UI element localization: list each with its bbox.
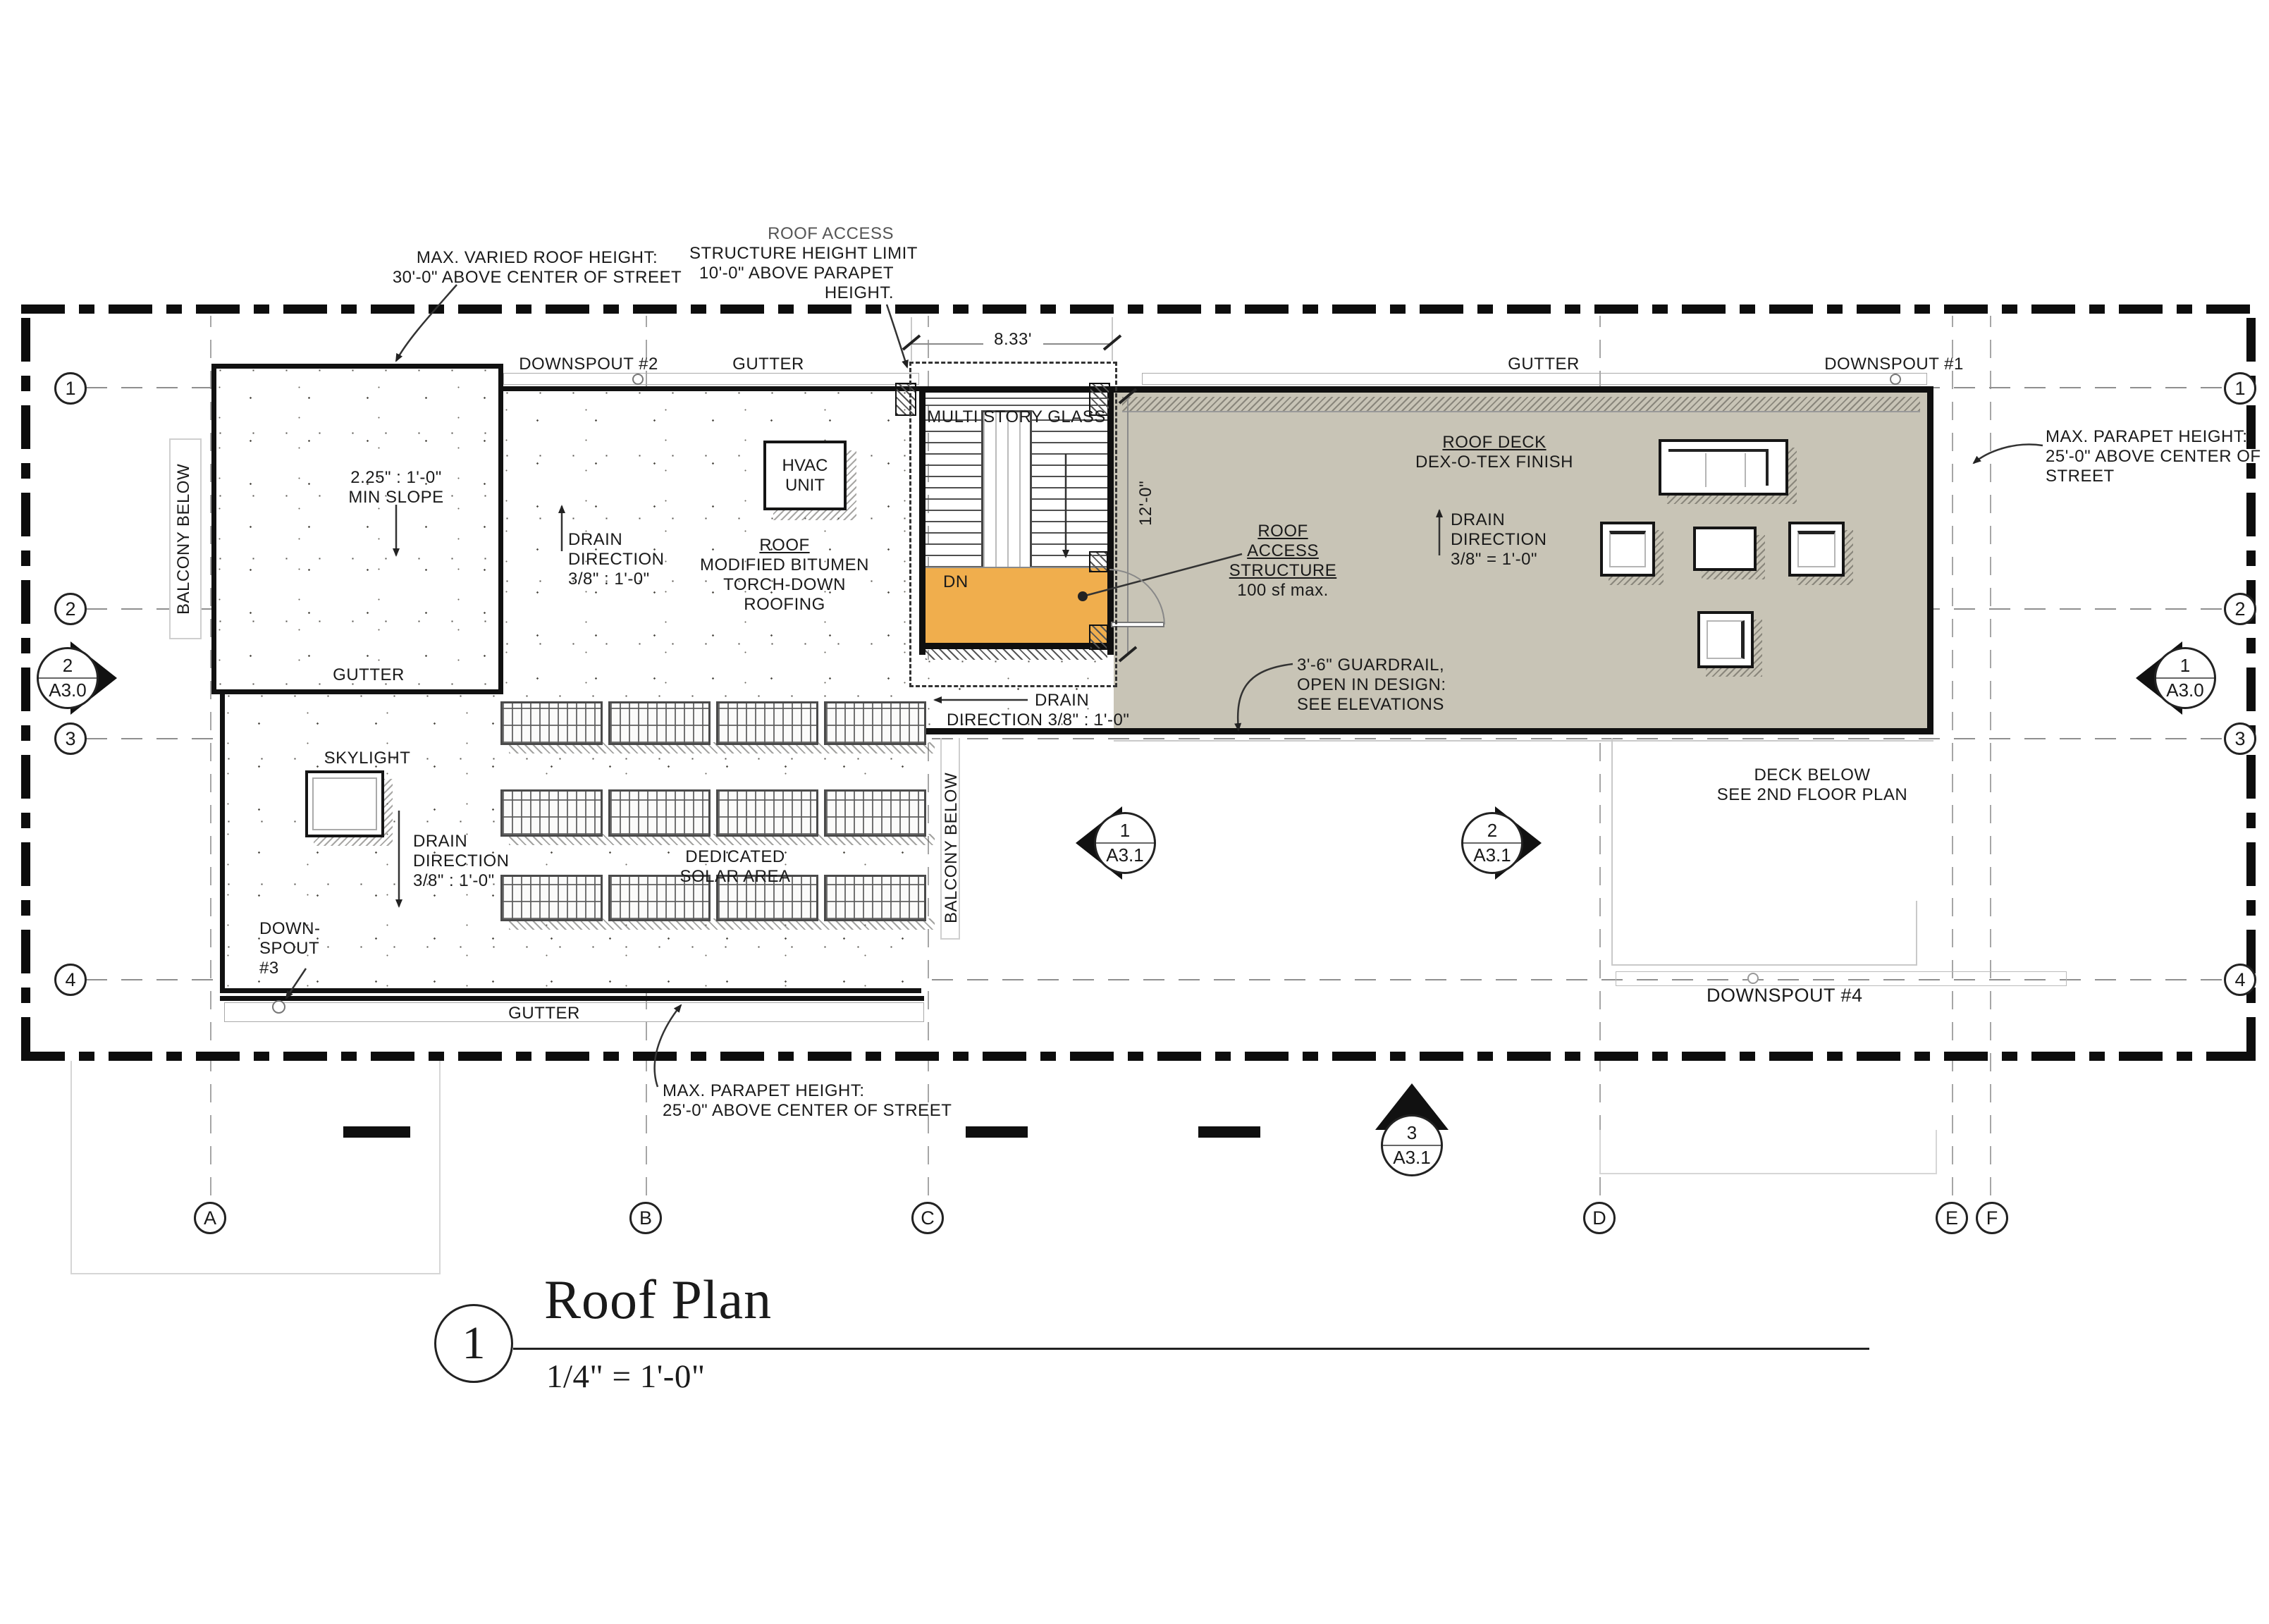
hvac-label-2: UNIT (785, 476, 825, 496)
property-line-right (2246, 304, 2256, 1061)
chair-inner (1797, 531, 1836, 567)
roof-deck-finish-note: ROOF DECKDEX-O-TEX FINISH (1415, 433, 1573, 472)
max-varied-roof-height-note: MAX. VARIED ROOF HEIGHT:30'-0" ABOVE CEN… (393, 248, 682, 288)
max-parapet-bottom-note: MAX. PARAPET HEIGHT:25'-0" ABOVE CENTER … (663, 1081, 952, 1121)
dim-deck-width: 12'-0" (1136, 481, 1156, 526)
downspout3-hole (272, 1000, 285, 1014)
solar-panel (500, 701, 603, 745)
max-parapet-right-note: MAX. PARAPET HEIGHT:25'-0" ABOVE CENTER … (2046, 427, 2261, 486)
solar-panel (824, 875, 926, 921)
dim-line-deck (1127, 395, 1129, 654)
downspout1-hole (1890, 374, 1901, 385)
guardrail-note: 3'-6" GUARDRAIL,OPEN IN DESIGN:SEE ELEVA… (1297, 656, 1446, 715)
deck-top-wall (1114, 386, 1933, 393)
downspout3-label: DOWN-SPOUT#3 (259, 919, 320, 978)
chair-bottom (1697, 611, 1754, 668)
dim-witness-right (1112, 317, 1113, 361)
gutter-left-label: GUTTER (333, 665, 405, 685)
chair-right (1788, 522, 1845, 577)
sofa (1659, 439, 1788, 496)
grid-bubble-row3-right: 3 (2224, 722, 2256, 755)
sofa-arm-line (1766, 449, 1769, 486)
multi-story-glass-label: MULTI STORY GLASS (927, 407, 1105, 427)
sofa-seat-divider (1705, 453, 1707, 487)
downspout1-label: DOWNSPOUT #1 (1824, 355, 1964, 374)
grid-bubble-row2-left: 2 (54, 593, 87, 625)
solar-panel (716, 789, 818, 837)
grid-bubble-col-B: B (629, 1202, 662, 1234)
drain-direction-bottom-note-2: DIRECTION 3/8" : 1'-0" (947, 710, 1129, 730)
property-line-left (21, 304, 30, 1061)
roof-plan-drawing: BALCONY BELOW BALCONY BELOW 8.33' 12'-0"… (0, 0, 2269, 1624)
skylight-inner-frame (312, 777, 377, 830)
hvac-unit: HVAC UNIT (763, 441, 847, 510)
skylight-label: SKYLIGHT (324, 749, 411, 768)
deck-below-right-line (1916, 901, 1917, 966)
solar-array-row-2 (500, 789, 926, 837)
grid-bubble-row1-left: 1 (54, 372, 87, 405)
upper-left-roof-block (211, 364, 503, 694)
grid-bubble-row2-right: 2 (2224, 593, 2256, 625)
grid-line-F (1990, 316, 1991, 1226)
solar-panel (824, 701, 926, 745)
property-line-bottom (21, 1052, 2256, 1061)
min-slope-note: 2.25" : 1'-0"MIN SLOPE (348, 468, 443, 508)
dim-witness-left (911, 317, 912, 361)
gutter-strip-bottom-right (1616, 971, 2067, 986)
solar-panel (500, 875, 603, 921)
roof-access-height-limit-note: ROOF ACCESS STRUCTURE HEIGHT LIMIT 10'-0… (689, 224, 894, 303)
skylight-box (305, 770, 384, 837)
dedicated-solar-area-note: DEDICATEDSOLAR AREA (680, 847, 790, 887)
downspout2-hole (632, 374, 644, 385)
drain-direction-deck-note: DRAINDIRECTION3/8" = 1'-0" (1451, 510, 1547, 570)
grid-bubble-row4-right: 4 (2224, 964, 2256, 996)
coffee-table (1693, 527, 1757, 571)
site-tick-2 (966, 1126, 1028, 1138)
sofa-seat-divider (1745, 453, 1746, 487)
gutter-strip-top-left (503, 373, 919, 385)
title-number: 1 (462, 1317, 486, 1370)
title-number-circle: 1 (434, 1304, 513, 1383)
dim-line-stair-a (911, 343, 983, 345)
neighbor-outline-right (1599, 1130, 1937, 1174)
neighbor-outline-left (70, 1061, 441, 1274)
grid-line-E (1952, 316, 1953, 1226)
chair-inner (1707, 620, 1745, 659)
balcony-below-left-label: BALCONY BELOW (174, 448, 194, 630)
drawing-title: Roof Plan (544, 1272, 772, 1328)
solar-panel (500, 789, 603, 837)
drawing-scale: 1/4" = 1'-0" (546, 1359, 706, 1394)
drain-direction-bottom-note-1: DRAIN (1035, 691, 1089, 710)
balcony-below-mid-label: BALCONY BELOW (942, 775, 961, 923)
solar-panel (716, 701, 818, 745)
solar-panel (824, 789, 926, 837)
grid-bubble-row1-right: 1 (2224, 372, 2256, 405)
hvac-label-1: HVAC (782, 456, 828, 476)
chair-inner (1609, 531, 1646, 567)
deck-edge-hatch (1122, 397, 1920, 412)
solar-array-row-1 (500, 701, 926, 745)
gutter-strip-top-right (1142, 373, 1927, 385)
deck-door-leaf (1111, 622, 1164, 627)
grid-bubble-col-A: A (194, 1202, 226, 1234)
grid-bubble-row4-left: 4 (54, 964, 87, 996)
gutter-top-left-label: GUTTER (732, 355, 804, 374)
drain-direction-skylight-note: DRAINDIRECTION3/8" : 1'-0" (413, 832, 510, 891)
dim-stair-width: 8.33' (994, 330, 1032, 350)
sofa-back-line (1668, 449, 1766, 452)
deck-below-note: DECK BELOWSEE 2ND FLOOR PLAN (1717, 765, 1907, 805)
dim-line-stair-b (1043, 343, 1112, 345)
solar-panel (608, 789, 711, 837)
site-tick-3 (1198, 1126, 1260, 1138)
deck-below-left-line (1611, 738, 1613, 966)
dn-label: DN (943, 572, 969, 592)
roof-access-structure-note: ROOF ACCESS STRUCTURE 100 sf max. (1229, 522, 1337, 601)
roof-type-note: ROOFMODIFIED BITUMEN TORCH-DOWNROOFING (700, 536, 869, 615)
grid-bubble-col-D: D (1583, 1202, 1616, 1234)
property-line-top (21, 304, 2256, 314)
grid-bubble-col-F: F (1976, 1202, 2008, 1234)
title-underline (513, 1348, 1869, 1350)
solar-panel (608, 701, 711, 745)
downspout4-hole (1747, 973, 1759, 984)
grid-bubble-row3-left: 3 (54, 722, 87, 755)
grid-bubble-col-C: C (911, 1202, 944, 1234)
grid-bubble-col-E: E (1936, 1202, 1968, 1234)
site-tick-1 (343, 1126, 410, 1138)
gutter-top-right-label: GUTTER (1508, 355, 1580, 374)
deck-below-bottom-line (1611, 964, 1917, 966)
bottom-wall-outer (220, 996, 924, 1001)
deck-right-wall (1927, 386, 1933, 734)
deck-gutter-line (1114, 740, 1933, 742)
downspout2-label: DOWNSPOUT #2 (519, 355, 658, 374)
downspout4-label: DOWNSPOUT #4 (1707, 985, 1863, 1005)
chair-left (1600, 522, 1655, 577)
drain-direction-left-note: DRAINDIRECTION3/8" : 1'-0" (568, 530, 665, 589)
gutter-bottom-label: GUTTER (508, 1004, 580, 1023)
